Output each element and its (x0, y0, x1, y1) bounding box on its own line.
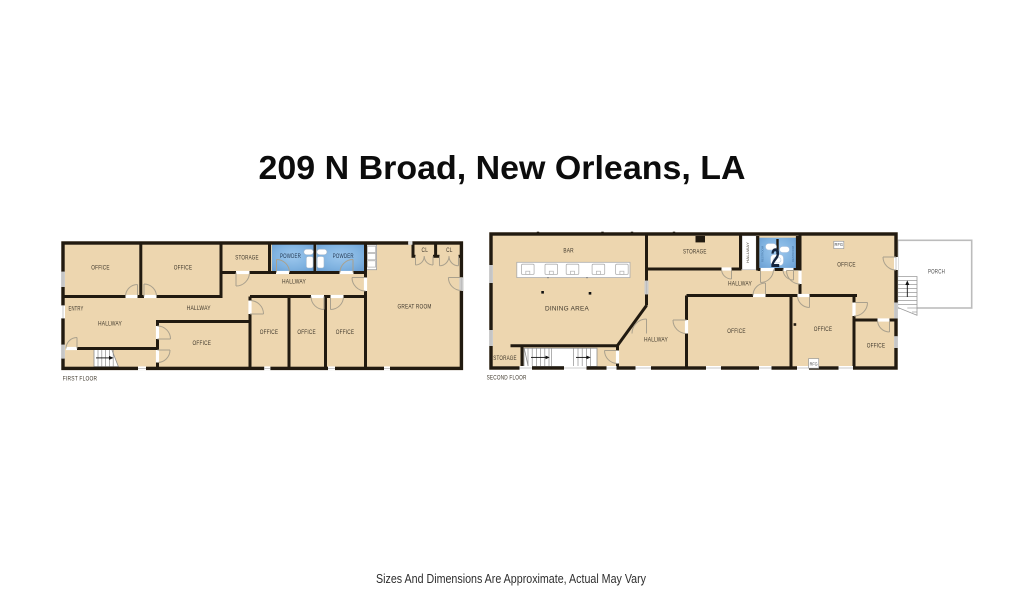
svg-text:STORAGE: STORAGE (235, 255, 259, 262)
svg-text:RESTROOM: RESTROOM (791, 245, 795, 262)
svg-text:OFFICE: OFFICE (91, 265, 110, 272)
svg-text:FIRST FLOOR: FIRST FLOOR (63, 376, 98, 383)
svg-text:Sizes And Dimensions Are Appro: Sizes And Dimensions Are Approximate, Ac… (376, 571, 646, 586)
svg-text:OFFICE: OFFICE (193, 340, 212, 347)
svg-text:OFFICE: OFFICE (336, 329, 355, 336)
svg-text:OFFICE: OFFICE (260, 329, 279, 336)
svg-text:POWDER: POWDER (333, 253, 354, 260)
svg-text:RESTROOM: RESTROOM (761, 245, 765, 262)
svg-text:POWDER: POWDER (280, 253, 301, 260)
svg-text:OFFICE: OFFICE (814, 326, 833, 333)
svg-text:RFG: RFG (810, 361, 818, 366)
svg-text:CL: CL (446, 247, 453, 254)
svg-text:OFFICE: OFFICE (174, 265, 193, 272)
svg-text:2: 2 (771, 243, 780, 273)
svg-text:OFFICE: OFFICE (867, 343, 886, 350)
svg-text:OFFICE: OFFICE (837, 262, 856, 269)
svg-text:BAR: BAR (563, 248, 574, 255)
svg-text:DINING AREA: DINING AREA (545, 306, 590, 313)
svg-text:SECOND FLOOR: SECOND FLOOR (487, 374, 527, 381)
svg-text:HALLWAY: HALLWAY (644, 336, 668, 343)
svg-text:OFFICE: OFFICE (297, 329, 316, 336)
svg-text:GREAT ROOM: GREAT ROOM (398, 304, 432, 311)
svg-text:209 N Broad, New Orleans, LA: 209 N Broad, New Orleans, LA (259, 150, 746, 187)
svg-text:HALLWAY: HALLWAY (282, 279, 306, 286)
svg-text:HALLWAY: HALLWAY (728, 281, 752, 288)
svg-text:STORAGE: STORAGE (683, 249, 707, 256)
svg-text:STORAGE: STORAGE (493, 355, 517, 362)
svg-text:RFG: RFG (835, 242, 844, 247)
svg-text:HALLWAY: HALLWAY (746, 242, 750, 263)
svg-text:CL: CL (422, 247, 429, 254)
svg-text:ENTRY: ENTRY (69, 306, 84, 313)
svg-text:OFFICE: OFFICE (727, 328, 746, 335)
svg-text:HALLWAY: HALLWAY (187, 305, 211, 312)
svg-text:PORCH: PORCH (928, 269, 945, 276)
svg-text:HALLWAY: HALLWAY (98, 321, 122, 328)
